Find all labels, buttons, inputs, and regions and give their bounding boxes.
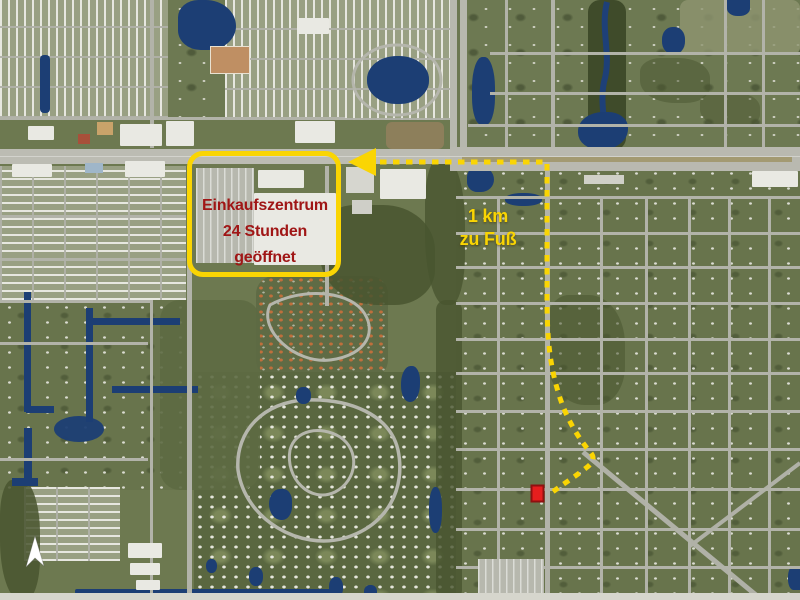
canal xyxy=(40,55,50,113)
building xyxy=(28,126,54,140)
golf-pond xyxy=(269,489,292,520)
building xyxy=(752,171,798,187)
road xyxy=(0,342,148,345)
pond xyxy=(727,0,750,16)
road xyxy=(468,124,800,127)
road xyxy=(456,196,800,199)
road xyxy=(456,410,800,413)
road xyxy=(728,196,731,600)
route-distance-line1: 1 km xyxy=(448,205,528,228)
edge-road-south xyxy=(0,593,800,600)
pond xyxy=(472,57,495,125)
road xyxy=(490,92,800,95)
road xyxy=(0,458,148,461)
building xyxy=(584,175,624,184)
parking-lot xyxy=(478,559,544,593)
canal xyxy=(86,376,93,422)
annotated-satellite-map: Einkaufszentrum 24 Stunden geöffnet 1 km… xyxy=(0,0,800,600)
woods-patch xyxy=(700,92,760,127)
zone-mobile-home-park-w xyxy=(0,166,186,300)
shopping-center-label-line2: 24 Stunden xyxy=(190,219,340,245)
pond xyxy=(662,27,685,54)
road xyxy=(456,372,800,375)
building xyxy=(85,163,103,173)
field-patch xyxy=(160,300,260,490)
shopping-center-label-line1: Einkaufszentrum xyxy=(190,193,340,219)
zone-mobile-home-park-n xyxy=(225,0,453,120)
golf-pond xyxy=(401,366,420,402)
shopping-center-label: Einkaufszentrum 24 Stunden geöffnet xyxy=(190,193,340,271)
shopping-center-label-line3: geöffnet xyxy=(190,245,340,271)
road xyxy=(0,117,345,120)
building xyxy=(130,563,160,575)
building xyxy=(136,580,160,590)
dirt-field xyxy=(386,122,444,149)
road xyxy=(456,528,800,531)
route-distance-label: 1 km zu Fuß xyxy=(448,205,528,251)
woods-patch xyxy=(545,295,625,405)
road xyxy=(0,258,186,261)
lake xyxy=(367,56,429,104)
golf-pond xyxy=(429,487,442,533)
boulevard-median xyxy=(457,0,460,150)
golf-pond xyxy=(249,567,263,586)
building xyxy=(295,121,335,143)
road xyxy=(456,302,800,305)
woods-patch xyxy=(640,58,710,103)
building xyxy=(346,167,374,193)
road xyxy=(0,215,186,218)
road xyxy=(688,196,691,600)
highway-median xyxy=(462,157,792,162)
road xyxy=(600,196,603,600)
canal xyxy=(12,478,38,486)
route-distance-line2: zu Fuß xyxy=(448,228,528,251)
road xyxy=(645,196,648,600)
building xyxy=(380,169,426,199)
canal xyxy=(112,386,198,393)
building xyxy=(97,122,113,135)
canal xyxy=(88,318,180,325)
road xyxy=(456,488,800,491)
canal-lagoon xyxy=(54,416,104,442)
canal xyxy=(26,406,54,413)
road xyxy=(456,338,800,341)
lake xyxy=(178,0,236,50)
golf-pond xyxy=(296,387,311,404)
building xyxy=(125,161,165,177)
building xyxy=(210,46,250,74)
woods-patch xyxy=(0,480,40,600)
building xyxy=(120,124,162,146)
building xyxy=(166,121,194,146)
building xyxy=(297,18,329,34)
building xyxy=(128,543,162,558)
building xyxy=(352,200,372,214)
road xyxy=(0,300,150,303)
road xyxy=(490,52,800,55)
road xyxy=(456,266,800,269)
road xyxy=(768,196,771,600)
pond xyxy=(788,566,800,590)
zone-mobile-home-park-nw xyxy=(0,0,168,118)
road xyxy=(497,196,500,600)
golf-pond xyxy=(206,559,217,573)
building xyxy=(12,164,52,177)
canal xyxy=(24,292,31,388)
road xyxy=(456,448,800,451)
building xyxy=(78,134,90,144)
